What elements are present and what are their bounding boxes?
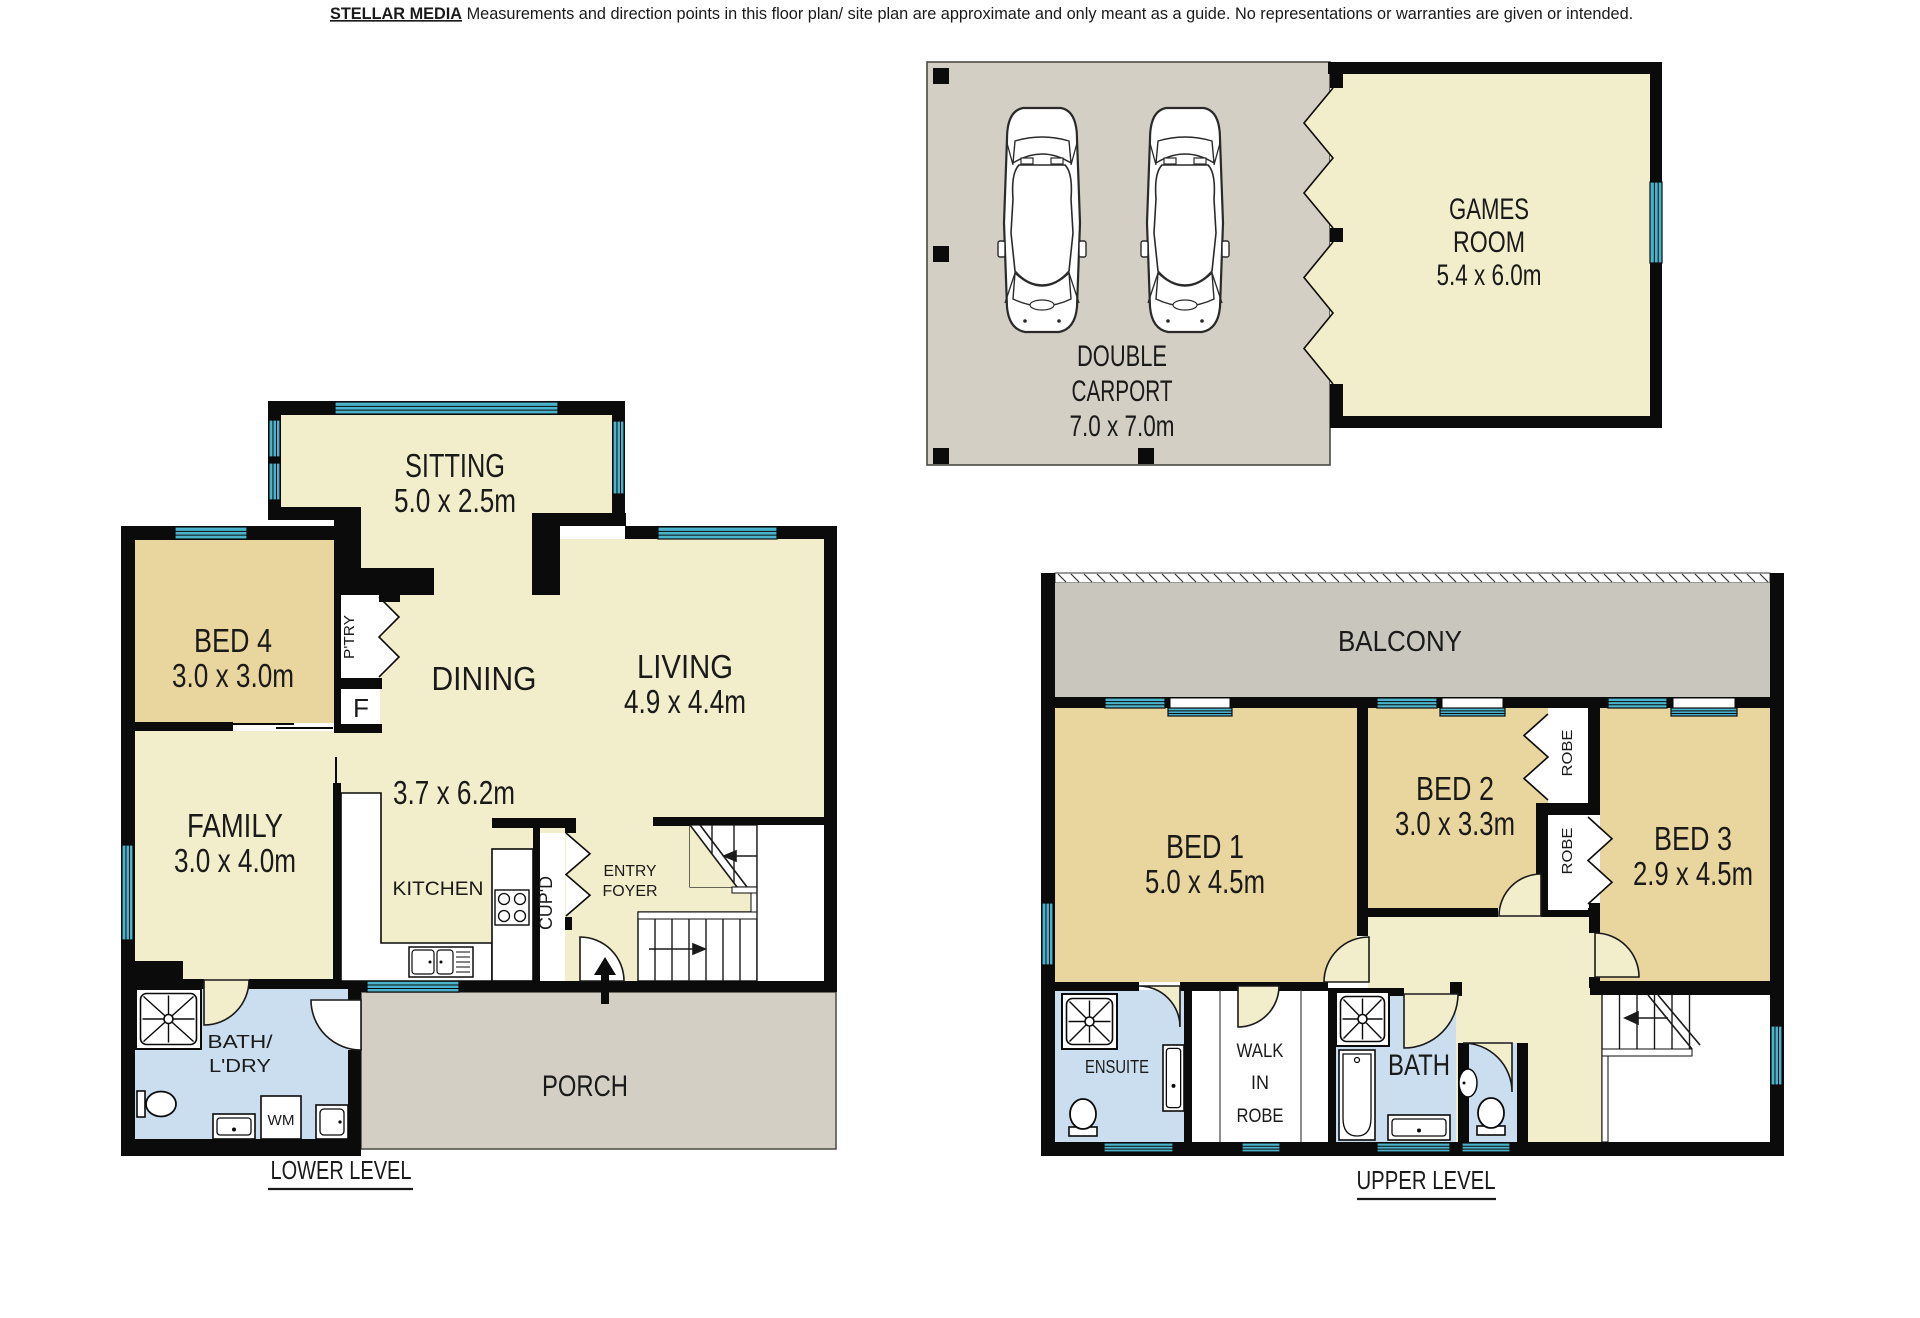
svg-text:3.0 x 4.0m: 3.0 x 4.0m [174,842,296,879]
svg-text:ROBE: ROBE [1559,828,1576,875]
svg-text:BED 3: BED 3 [1654,820,1732,857]
svg-text:GAMES: GAMES [1449,193,1529,226]
svg-text:BED 1: BED 1 [1166,828,1244,865]
svg-text:ROOM: ROOM [1453,226,1525,259]
svg-text:DINING: DINING [432,660,537,697]
svg-text:BATH: BATH [1388,1049,1450,1082]
svg-text:FAMILY: FAMILY [187,807,283,844]
svg-text:STELLAR MEDIA Measurements and: STELLAR MEDIA Measurements and direction… [330,5,1633,23]
svg-text:LOWER LEVEL: LOWER LEVEL [271,1155,412,1185]
svg-text:7.0 x 7.0m: 7.0 x 7.0m [1070,410,1175,443]
svg-text:4.9 x 4.4m: 4.9 x 4.4m [624,683,746,720]
svg-text:BALCONY: BALCONY [1338,626,1462,658]
svg-text:BED 2: BED 2 [1416,770,1494,807]
svg-text:5.0 x 4.5m: 5.0 x 4.5m [1145,863,1265,900]
svg-text:5.0 x 2.5m: 5.0 x 2.5m [394,482,516,519]
svg-text:WM: WM [268,1112,295,1129]
svg-text:F: F [353,693,369,723]
svg-text:2.9 x 4.5m: 2.9 x 4.5m [1633,855,1753,892]
svg-text:BATH/: BATH/ [208,1032,273,1052]
svg-text:ROBE: ROBE [1237,1106,1284,1127]
svg-text:3.0 x 3.3m: 3.0 x 3.3m [1395,805,1515,842]
svg-text:P'TRY: P'TRY [341,615,358,659]
svg-text:CUP'D: CUP'D [536,876,556,930]
svg-text:ENTRY: ENTRY [604,863,657,880]
svg-text:BED 4: BED 4 [194,622,272,659]
svg-text:WALK: WALK [1237,1041,1284,1062]
svg-text:PORCH: PORCH [542,1070,628,1103]
svg-text:3.0 x 3.0m: 3.0 x 3.0m [172,657,294,694]
svg-text:5.4 x 6.0m: 5.4 x 6.0m [1437,259,1542,292]
svg-text:L'DRY: L'DRY [209,1056,271,1076]
svg-text:ROBE: ROBE [1559,730,1576,777]
svg-text:UPPER LEVEL: UPPER LEVEL [1357,1165,1496,1195]
svg-text:LIVING: LIVING [637,648,733,685]
svg-text:KITCHEN: KITCHEN [393,879,484,900]
svg-text:DOUBLE: DOUBLE [1077,340,1167,373]
svg-text:FOYER: FOYER [603,883,658,900]
svg-text:SITTING: SITTING [405,447,505,484]
svg-text:ENSUITE: ENSUITE [1085,1057,1149,1077]
svg-text:3.7 x 6.2m: 3.7 x 6.2m [393,774,515,811]
svg-text:CARPORT: CARPORT [1072,375,1173,408]
svg-text:IN: IN [1251,1073,1269,1094]
